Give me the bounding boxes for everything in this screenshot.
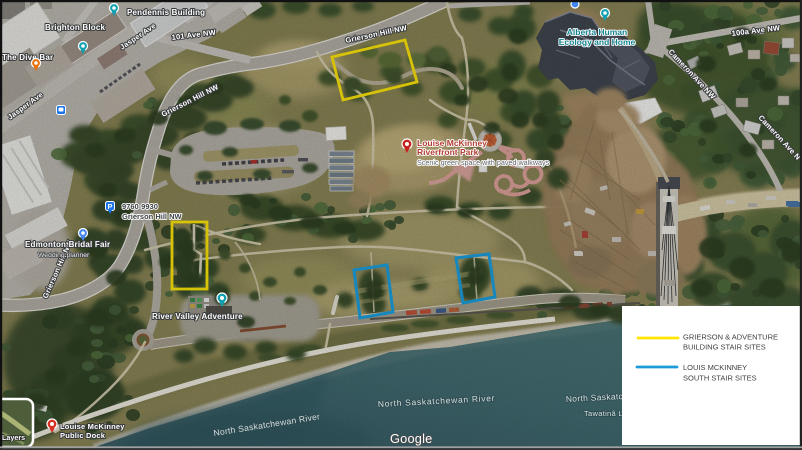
svg-text:GRIERSON & ADVENTURE: GRIERSON & ADVENTURE: [683, 332, 778, 341]
svg-text:LOUIS MCKINNEY: LOUIS MCKINNEY: [683, 363, 747, 372]
svg-text:Google: Google: [390, 431, 432, 446]
svg-text:River Valley Adventure: River Valley Adventure: [152, 312, 243, 321]
svg-text:9760-9930: 9760-9930: [122, 202, 158, 211]
svg-text:Tawatinâ L: Tawatinâ L: [584, 409, 623, 418]
svg-text:Grierson Hill NW: Grierson Hill NW: [122, 212, 183, 221]
svg-text:Alberta Human: Alberta Human: [567, 27, 627, 37]
svg-text:Ecology and Home: Ecology and Home: [559, 37, 636, 47]
svg-text:Layers: Layers: [2, 433, 25, 442]
svg-text:Riverfront Park: Riverfront Park: [417, 147, 479, 157]
svg-text:BUILDING STAIR SITES: BUILDING STAIR SITES: [683, 343, 766, 352]
svg-text:Scenic green space with paved: Scenic green space with paved walkways: [417, 158, 550, 167]
svg-text:Public Dock: Public Dock: [60, 431, 106, 440]
svg-text:Edmonton Bridal Fair: Edmonton Bridal Fair: [25, 240, 110, 249]
svg-text:Wedding planner: Wedding planner: [38, 252, 90, 259]
svg-text:SOUTH STAIR SITES: SOUTH STAIR SITES: [683, 373, 757, 382]
svg-text:Louise McKinney: Louise McKinney: [60, 422, 125, 431]
svg-text:P: P: [107, 202, 112, 211]
svg-text:The Dive Bar: The Dive Bar: [2, 53, 53, 62]
svg-text:Pendennis Building: Pendennis Building: [127, 8, 205, 17]
svg-text:Brighton Block: Brighton Block: [45, 23, 105, 32]
